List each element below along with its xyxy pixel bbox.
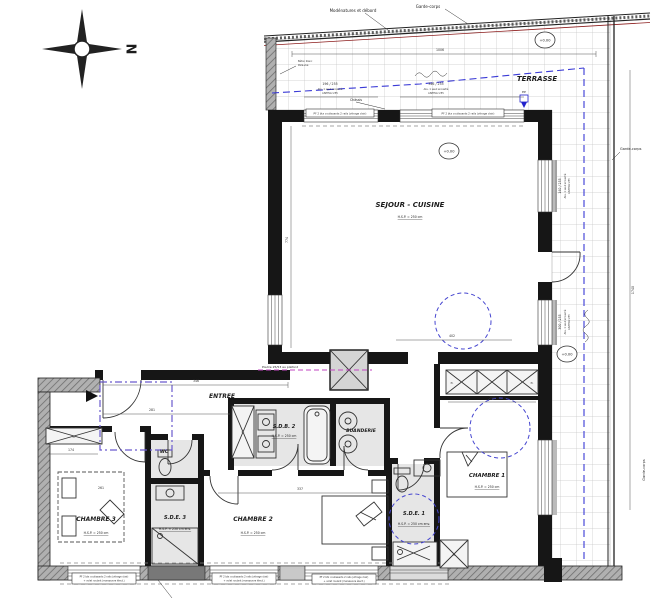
label-sejour-hsp: H.S.P. = 250 cm bbox=[398, 215, 423, 219]
dim-window-left: 174 bbox=[68, 448, 74, 452]
label-sde3-hsp: H.S.P. = 250 cm env. bbox=[159, 527, 191, 531]
dim-closet-row: 258 bbox=[489, 396, 495, 400]
annotation-modenatures: Modénatures et débord bbox=[330, 8, 377, 13]
room-sde3-floor bbox=[151, 484, 200, 566]
sill-note-2d: LINTEAU 255 bbox=[568, 314, 571, 330]
annotation-ep: EP bbox=[522, 90, 526, 94]
closet-label-1: Pl. bbox=[73, 436, 76, 439]
window-note-b2-l1: PF 2 btx coulissants 2 rails (vitrage cl… bbox=[220, 576, 269, 579]
dim-bay-right-2: 300 / 255 bbox=[558, 314, 562, 329]
turning-circle-sejour bbox=[435, 293, 491, 349]
dim-terrace-right: 1740 bbox=[631, 286, 635, 294]
dim-entree-width: 346 bbox=[193, 379, 199, 383]
label-sde3: S.D.E. 3 bbox=[164, 515, 187, 521]
leader-garde-corps-top bbox=[445, 9, 468, 24]
closet-label-4: Pl. bbox=[531, 382, 534, 385]
floor-plan-drawing: 1006 346 281 261 337 258 174 774 402 174… bbox=[0, 0, 656, 600]
compass-center bbox=[74, 41, 90, 57]
label-terrasse: TERRASSE bbox=[517, 75, 558, 83]
sill-note-1d: ALL. 1 seuil encastré bbox=[564, 309, 567, 334]
bed-chambre2 bbox=[322, 480, 388, 560]
window-sde3-opaque bbox=[148, 566, 205, 580]
window-right-2 bbox=[538, 300, 552, 345]
label-chambre1-hsp: H.S.P. = 250 cm bbox=[475, 485, 500, 489]
terrace bbox=[264, 13, 650, 570]
dim-bay-top-right: 346 / 255 bbox=[428, 82, 443, 86]
window-note-b1-l2: + volet roulant (manœuvre élect.) bbox=[83, 580, 124, 583]
label-sde1-hsp: H.S.P. = 250 cm env. bbox=[398, 522, 430, 526]
window-note-top-right: PF 2 btx coulissants 2 rails (vitrage cl… bbox=[442, 112, 495, 116]
shower-sde1 bbox=[393, 542, 437, 566]
level-marker-sejour: +0.00 bbox=[443, 150, 455, 154]
label-chambre1: CHAMBRE 1 bbox=[469, 473, 505, 479]
annotation-chassis: Châssis bbox=[350, 98, 362, 102]
closet-row-chambre1 bbox=[446, 370, 538, 394]
label-wc: WC bbox=[160, 449, 169, 455]
label-chambre2: CHAMBRE 2 bbox=[233, 516, 273, 523]
window-note-b1-l1: PF 2 btx coulissants 2 rails (vitrage cl… bbox=[80, 576, 129, 579]
window-right-1 bbox=[538, 160, 552, 212]
annotation-beton-2: Pare-vue bbox=[298, 64, 309, 67]
window-sde1 bbox=[390, 566, 448, 580]
label-chambre3: CHAMBRE 3 bbox=[76, 516, 116, 523]
walls bbox=[38, 110, 622, 582]
compass: N bbox=[42, 9, 138, 89]
floor-plan-page: 1006 346 281 261 337 258 174 774 402 174… bbox=[0, 0, 656, 600]
label-sdb2: S.D.B. 2 bbox=[273, 424, 296, 430]
label-entree: ENTREE bbox=[209, 393, 236, 400]
level-marker-terrace: +0.00 bbox=[539, 39, 551, 43]
leader-modenatures bbox=[365, 13, 388, 30]
sill-note-1a: ALL. 1 seuil encastré bbox=[318, 88, 343, 91]
dim-sejour-height: 774 bbox=[285, 237, 289, 243]
door-entry-arc bbox=[103, 380, 141, 418]
dim-bay-right-1: 140 / 255 bbox=[558, 178, 562, 193]
sill-note-2b: LINTEAU 255 bbox=[428, 92, 444, 95]
terrace-left-wall bbox=[266, 38, 276, 110]
closet-label-2: Pl. bbox=[242, 431, 245, 434]
level-marker-terrace-2: +0.00 bbox=[561, 353, 573, 357]
label-buanderie: BUANDERIE bbox=[346, 428, 377, 434]
compass-north-label: N bbox=[123, 44, 138, 55]
window-note-top-left: PF 2 btx coulissants 2 rails (vitrage cl… bbox=[314, 112, 367, 116]
leader-garde-corps-right bbox=[612, 152, 620, 160]
closet-label-3: Pl. bbox=[451, 382, 454, 385]
window-note-b2-l2: + volet roulant (manœuvre élect.) bbox=[223, 580, 264, 583]
window-sejour-left bbox=[268, 295, 282, 345]
annotation-garde-corps-right: Garde-corps bbox=[620, 147, 642, 151]
sill-note-1c: ALL. 1 seuil encastré bbox=[564, 173, 567, 198]
dim-entree-depth: 281 bbox=[149, 408, 155, 412]
windows bbox=[60, 110, 552, 584]
annotation-beton-1: Béton blanc bbox=[298, 60, 313, 63]
label-sde1: S.D.E. 1 bbox=[403, 511, 425, 517]
annotation-garde-corps-top: Garde-corps bbox=[416, 4, 440, 9]
dim-top-terrace: 1006 bbox=[436, 48, 444, 52]
bathtub-sdb2 bbox=[304, 406, 330, 464]
closet-label-5: Pl. bbox=[453, 554, 456, 557]
label-sejour: SEJOUR - CUISINE bbox=[376, 201, 445, 209]
door-chambre2-arc bbox=[210, 476, 238, 504]
sill-note-1b: ALL. 1 seuil encastré bbox=[424, 88, 449, 91]
door-chambre1-arc bbox=[440, 428, 468, 458]
label-sdb2-hsp: H.S.P. = 250 cm bbox=[272, 434, 297, 438]
dim-sejour-width: 402 bbox=[449, 334, 455, 338]
dim-bay-top-left: 196 / 255 bbox=[322, 82, 337, 86]
window-chambre1 bbox=[538, 440, 552, 515]
annotation-poutre: Poutre 25/53 au plafond bbox=[262, 365, 298, 369]
door-chambre3-arc bbox=[115, 432, 145, 462]
annotation-garde-corps-right-2: Garde-corps bbox=[642, 459, 646, 481]
dim-chambre2: 337 bbox=[297, 487, 303, 491]
sill-note-2a: LINTEAU 255 bbox=[322, 92, 338, 95]
dim-chambre3: 261 bbox=[98, 486, 104, 490]
sill-note-2c: LINTEAU 255 bbox=[568, 178, 571, 194]
label-chambre2-hsp: H.S.P. = 250 cm bbox=[241, 531, 266, 535]
label-chambre3-hsp: H.S.P. = 250 cm bbox=[84, 531, 109, 535]
turning-circle-chambre1 bbox=[470, 398, 530, 458]
window-note-b3-l2: + volet roulant (manœuvre élect.) bbox=[323, 580, 364, 583]
leader-bottom-margin bbox=[158, 580, 172, 598]
window-note-b3-l1: PF 2 btx coulissants 2 rails (vitrage cl… bbox=[320, 576, 369, 579]
